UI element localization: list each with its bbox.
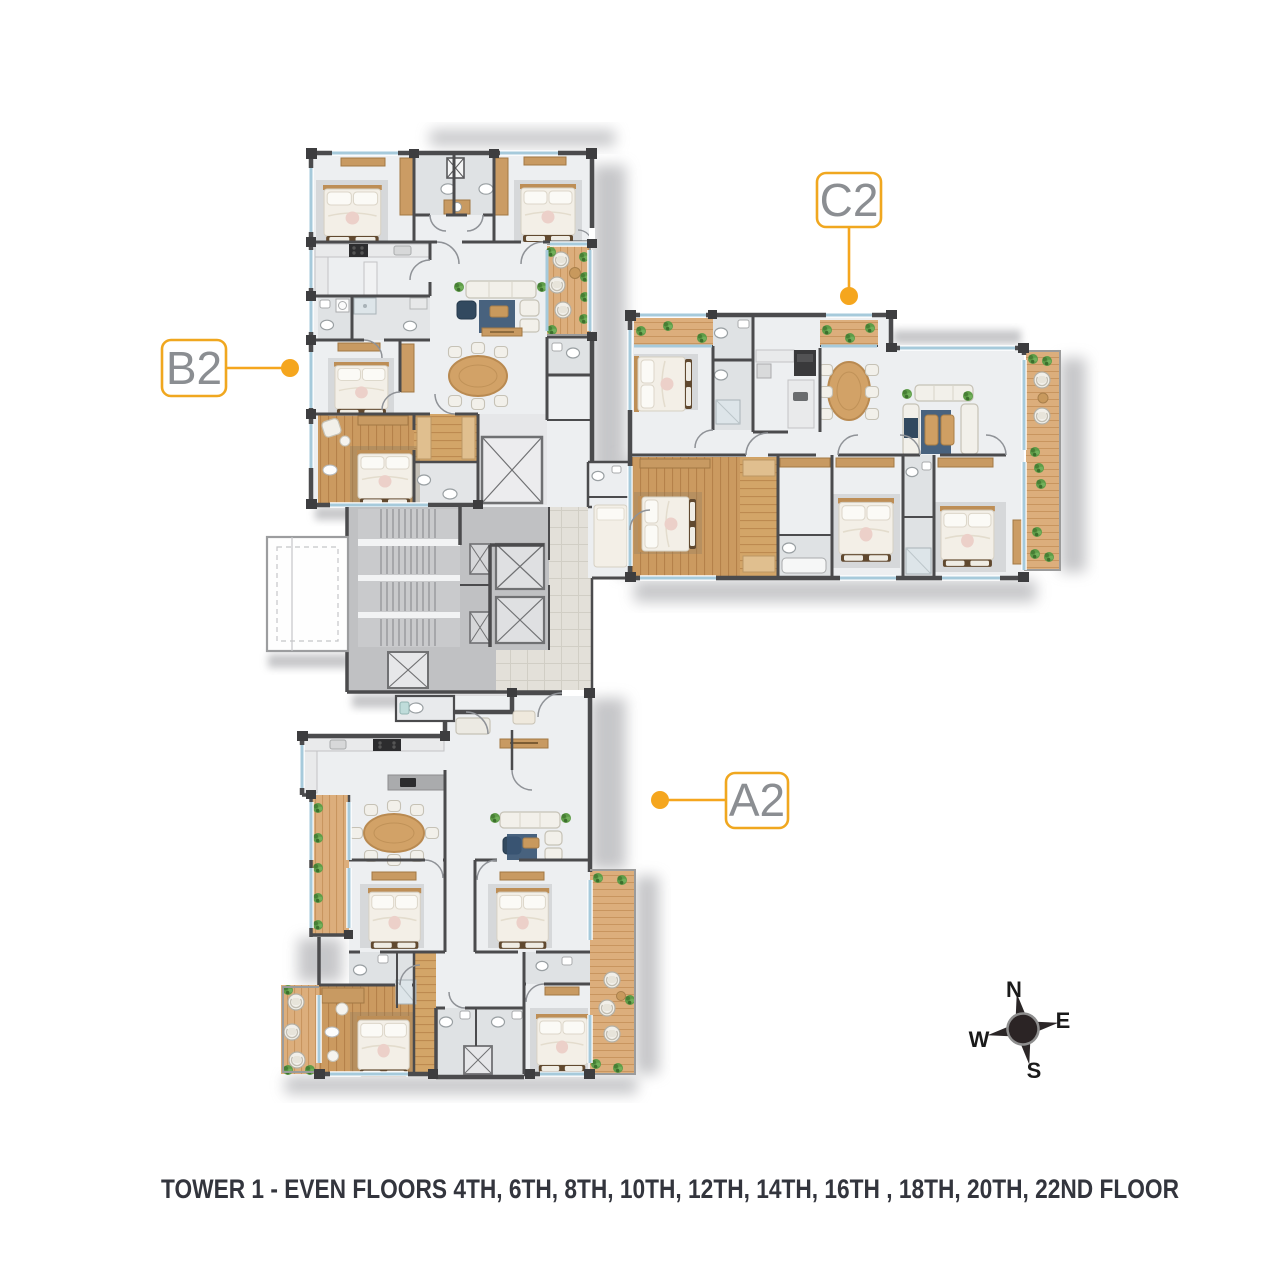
svg-text:W: W [969,1027,990,1052]
svg-text:E: E [1056,1008,1071,1033]
svg-text:B2: B2 [166,342,222,394]
svg-text:N: N [1006,977,1022,1002]
svg-text:C2: C2 [820,174,879,226]
svg-text:TOWER 1 - EVEN FLOORS 4TH, 6TH: TOWER 1 - EVEN FLOORS 4TH, 6TH, 8TH, 10T… [161,1174,1179,1204]
svg-text:A2: A2 [729,774,785,826]
svg-text:S: S [1027,1058,1042,1083]
